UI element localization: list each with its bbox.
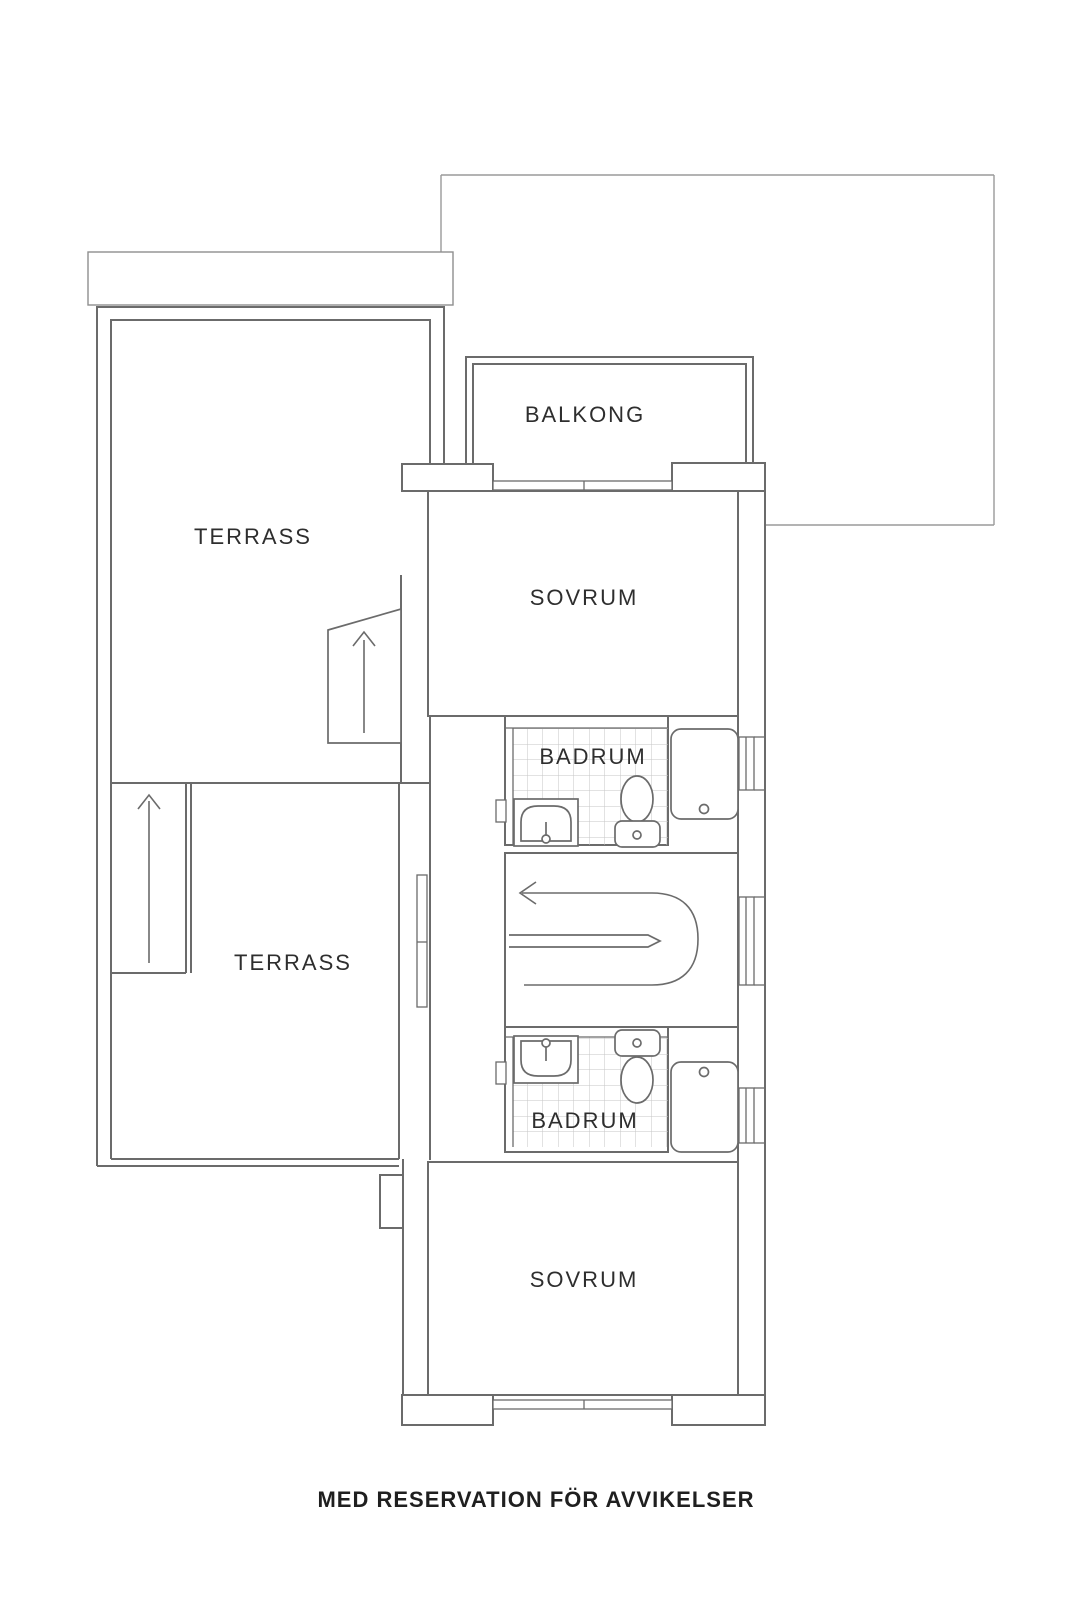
- sink-icon-upper: [514, 799, 578, 846]
- room-label-sovrum-upper: SOVRUM: [530, 585, 639, 610]
- east-windows: [739, 737, 765, 1143]
- stairwell: [505, 853, 738, 1027]
- shower-icon-lower: [671, 1062, 738, 1152]
- floor-plan-drawing: BALKONG TERRASS SOVRUM BADRUM TERRASS BA…: [0, 0, 1083, 1600]
- room-label-balkong: BALKONG: [525, 402, 645, 427]
- bedroom-lower-window: [493, 1400, 672, 1409]
- chimney-notch: [380, 1159, 403, 1395]
- stairs-up-arrow-terrace-lower: [138, 795, 160, 963]
- room-label-badrum-upper: BADRUM: [539, 744, 646, 769]
- bathroom-lower: [496, 1027, 738, 1152]
- terrace-window: [417, 875, 427, 1007]
- disclaimer-text: MED RESERVATION FÖR AVVIKELSER: [317, 1487, 754, 1512]
- room-label-sovrum-lower: SOVRUM: [530, 1267, 639, 1292]
- floor-plan-canvas: BALKONG TERRASS SOVRUM BADRUM TERRASS BA…: [0, 0, 1083, 1600]
- room-label-terrass-upper: TERRASS: [194, 524, 312, 549]
- bathroom-upper: [496, 716, 738, 847]
- room-label-terrass-lower: TERRASS: [234, 950, 352, 975]
- stairs-handrail: [509, 935, 660, 947]
- upper-terrace-edge-strip: [88, 252, 453, 305]
- bedroom-upper-window: [493, 481, 672, 490]
- shower-icon-upper: [671, 729, 738, 819]
- sink-icon-lower: [514, 1036, 578, 1083]
- room-label-badrum-lower: BADRUM: [531, 1108, 638, 1133]
- door-jamb: [496, 1062, 506, 1084]
- upper-terrace: [97, 307, 444, 1166]
- door-jamb: [496, 800, 506, 822]
